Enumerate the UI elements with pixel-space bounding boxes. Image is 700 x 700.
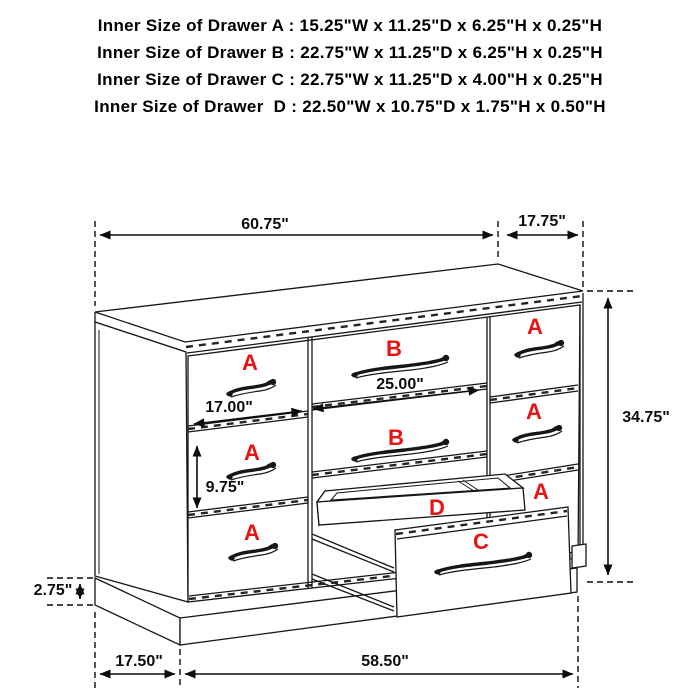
right-plinth-corner [572, 544, 586, 568]
drawer-a-label: A [527, 314, 543, 339]
dim-base-height-label: 2.75" [34, 582, 73, 599]
dim-bottom-depth-label: 17.50" [115, 653, 163, 670]
drawer-a-label: A [533, 479, 549, 504]
drawer-a-label: A [244, 520, 260, 545]
drawer-d-label: D [429, 495, 445, 520]
dim-drawer-a-height-label: 9.75" [206, 479, 245, 496]
dim-height-label: 34.75" [622, 409, 670, 426]
drawer-a-label: A [244, 440, 260, 465]
drawer-c-label: C [473, 529, 489, 554]
drawer-a-label: A [526, 399, 542, 424]
dim-drawer-a-width-label: 17.00" [205, 399, 253, 416]
dresser-dimension-sheet: Inner Size of Drawer A : 15.25"W x 11.25… [0, 0, 700, 700]
dim-top-depth-label: 17.75" [518, 213, 566, 230]
dim-drawer-b-width-label: 25.00" [376, 376, 424, 393]
dim-top-width-label: 60.75" [241, 216, 289, 233]
drawer-b-label: B [388, 425, 404, 450]
drawer-b-label: B [386, 336, 402, 361]
dresser-diagram: A A A B B A A A D C 60.75" 17.75" 34.75" [0, 0, 700, 700]
drawer-a-label: A [242, 350, 258, 375]
dim-bottom-width-label: 58.50" [361, 653, 409, 670]
cabinet-left-side [95, 322, 188, 602]
